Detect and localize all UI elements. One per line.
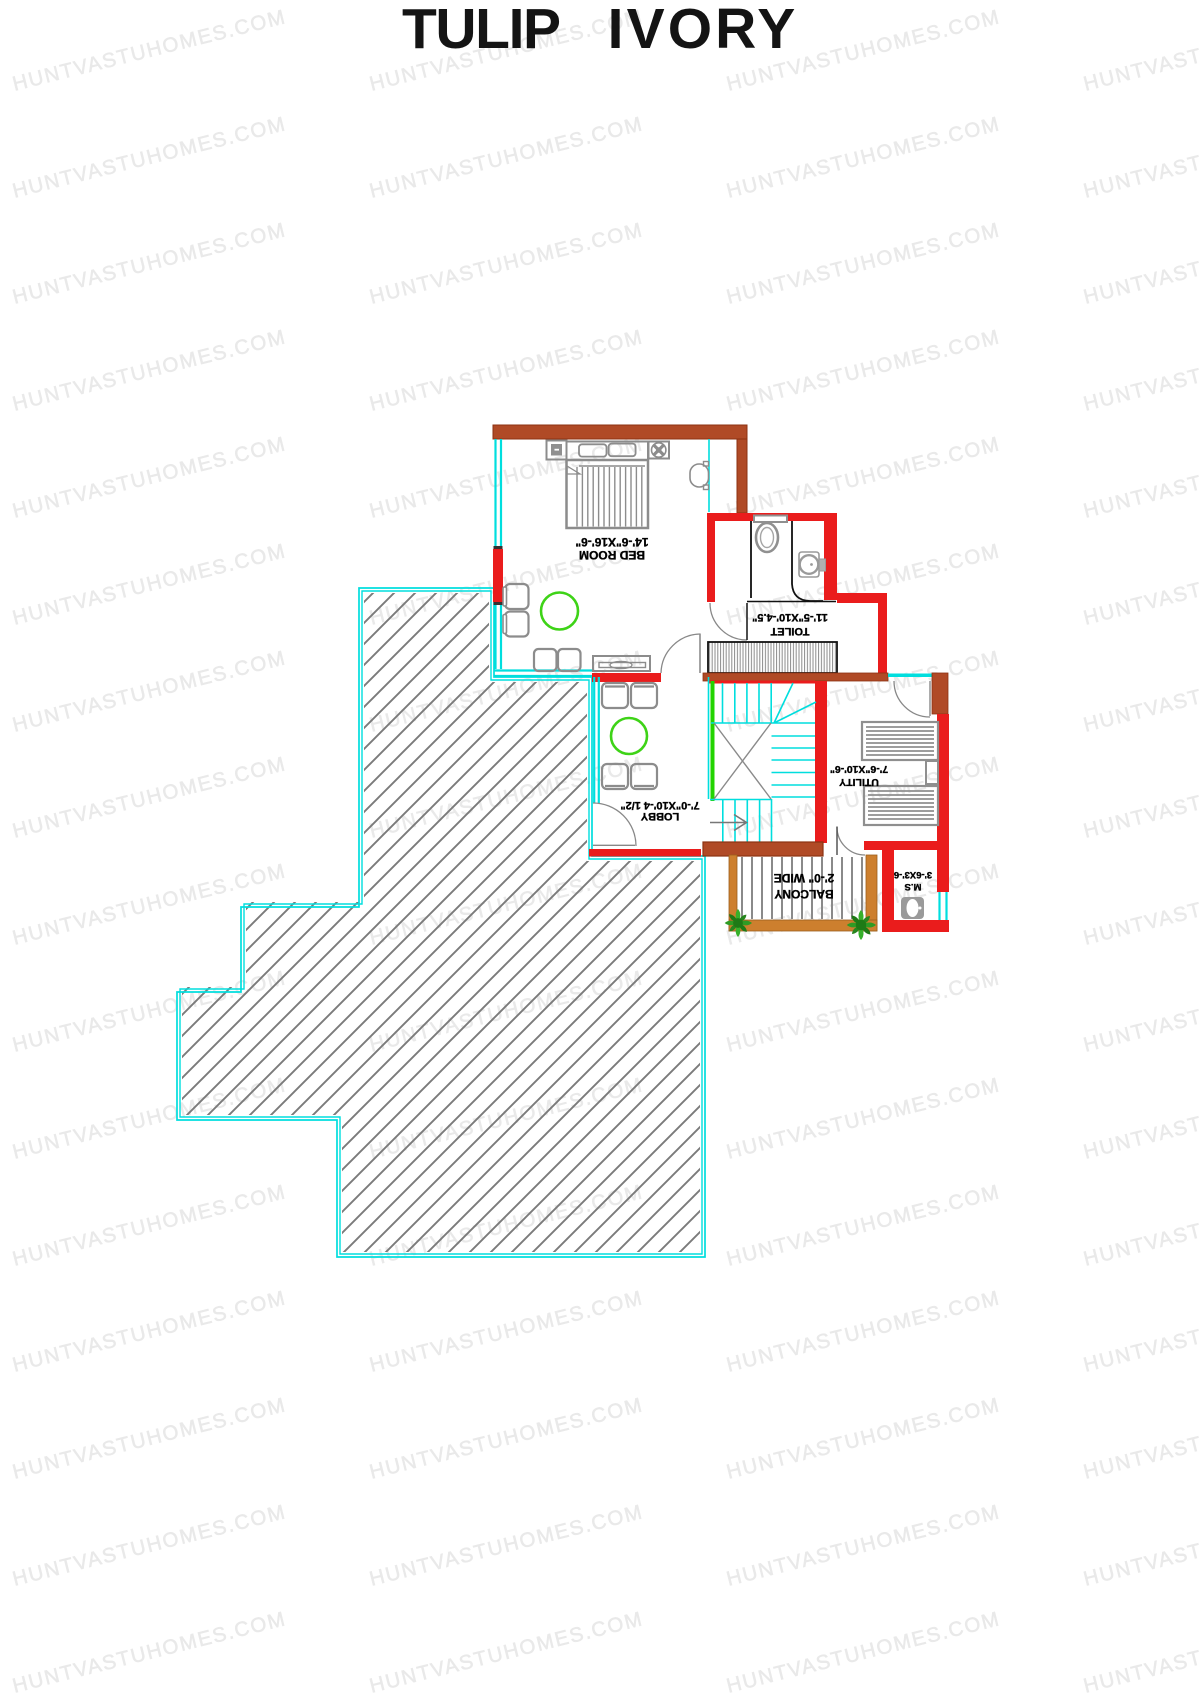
svg-text:BALCONY: BALCONY [774, 887, 833, 901]
svg-text:7'-6"X10'-6": 7'-6"X10'-6" [830, 763, 888, 775]
svg-text:M.S: M.S [905, 881, 922, 892]
svg-text:UTILITY: UTILITY [839, 776, 879, 788]
svg-text:11'-5"X10'-4.5": 11'-5"X10'-4.5" [752, 611, 828, 623]
svg-text:BED ROOM: BED ROOM [579, 548, 645, 562]
svg-text:TOILET: TOILET [770, 625, 809, 637]
svg-text:2'-0" WIDE: 2'-0" WIDE [774, 871, 835, 885]
svg-text:14'-6"X16'-6": 14'-6"X16'-6" [575, 535, 648, 549]
svg-text:7'-0"X10'-4 1/2": 7'-0"X10'-4 1/2" [620, 799, 699, 811]
svg-text:LOBBY: LOBBY [640, 810, 679, 822]
svg-text:3'-6X3'-6: 3'-6X3'-6 [894, 869, 932, 880]
